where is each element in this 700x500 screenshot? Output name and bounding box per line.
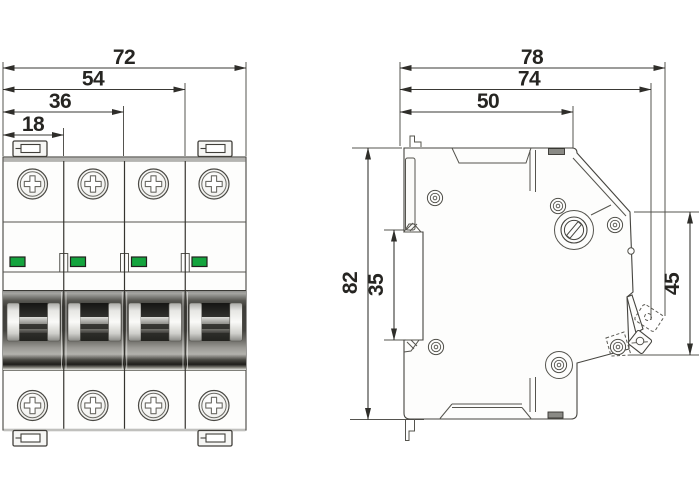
front-dimension-54: 54 bbox=[3, 68, 185, 91]
side-view: 78 74 50 82 35 45 bbox=[339, 46, 699, 441]
screw-top-pole4 bbox=[199, 169, 229, 199]
side-screw-lower-left bbox=[428, 339, 443, 354]
side-front-height-label: 45 bbox=[661, 272, 684, 295]
pole2-green-indicator bbox=[71, 257, 86, 267]
side-screw-upper-mid bbox=[550, 198, 565, 213]
screw-bottom-pole3 bbox=[139, 391, 169, 421]
side-rail-slot-height-label: 35 bbox=[365, 273, 388, 296]
front-dimension-18: 18 bbox=[3, 113, 64, 136]
bottom-rail-clip-left bbox=[13, 431, 47, 447]
side-dimension-74: 74 bbox=[400, 68, 651, 91]
pole1-green-indicator bbox=[10, 257, 25, 267]
side-bottom-hook bbox=[406, 419, 415, 441]
side-overall-depth-label: 78 bbox=[521, 46, 544, 69]
screw-top-pole2 bbox=[78, 169, 108, 199]
side-body-depth-label: 50 bbox=[477, 90, 499, 113]
top-rail-clip-left bbox=[13, 141, 47, 157]
front-overall-width-label: 72 bbox=[113, 46, 135, 69]
pole4-green-indicator bbox=[192, 257, 207, 267]
lever-shaft bbox=[627, 295, 643, 333]
technical-drawing-page: 72 54 36 18 bbox=[0, 0, 700, 500]
front-one-pole-width-label: 18 bbox=[22, 113, 45, 136]
breaker-dimension-drawing: 72 54 36 18 bbox=[0, 0, 700, 500]
screw-top-pole1 bbox=[18, 169, 48, 199]
front-view: 72 54 36 18 bbox=[3, 46, 246, 446]
side-depth-with-lever-label: 74 bbox=[518, 68, 541, 91]
screw-bottom-pole2 bbox=[78, 391, 108, 421]
side-dimension-35: 35 bbox=[365, 230, 428, 340]
side-dimension-50: 50 bbox=[400, 90, 573, 113]
front-two-pole-width-label: 36 bbox=[49, 90, 71, 113]
pole4-toggle-handle bbox=[189, 303, 242, 341]
lever-alt-pin bbox=[645, 314, 652, 321]
side-screw-lower-mid bbox=[551, 357, 566, 372]
side-top-marker bbox=[549, 149, 565, 155]
top-rail-clip-right bbox=[198, 141, 232, 157]
side-screw-upper-front bbox=[607, 217, 622, 232]
side-screw-lower-front bbox=[610, 339, 625, 354]
pole3-green-indicator bbox=[132, 257, 147, 267]
screw-bottom-pole4 bbox=[199, 391, 229, 421]
screw-bottom-pole1 bbox=[18, 391, 48, 421]
side-dimension-78: 78 bbox=[400, 46, 665, 69]
lever-pivot-pin bbox=[628, 248, 634, 254]
pole3-toggle-handle bbox=[129, 303, 182, 341]
bottom-rail-clip-right bbox=[198, 431, 232, 447]
front-dimension-72: 72 bbox=[3, 46, 246, 69]
side-screw-upper-left bbox=[427, 190, 442, 205]
side-top-hook bbox=[410, 136, 421, 147]
side-overall-height-label: 82 bbox=[339, 272, 362, 294]
pole2-toggle-handle bbox=[68, 303, 121, 341]
side-bottom-marker bbox=[548, 412, 563, 418]
pole1-toggle-handle bbox=[7, 303, 60, 341]
front-three-pole-width-label: 54 bbox=[82, 68, 105, 91]
front-dimension-36: 36 bbox=[3, 90, 124, 113]
side-housing-profile bbox=[404, 148, 633, 419]
screw-top-pole3 bbox=[139, 169, 169, 199]
